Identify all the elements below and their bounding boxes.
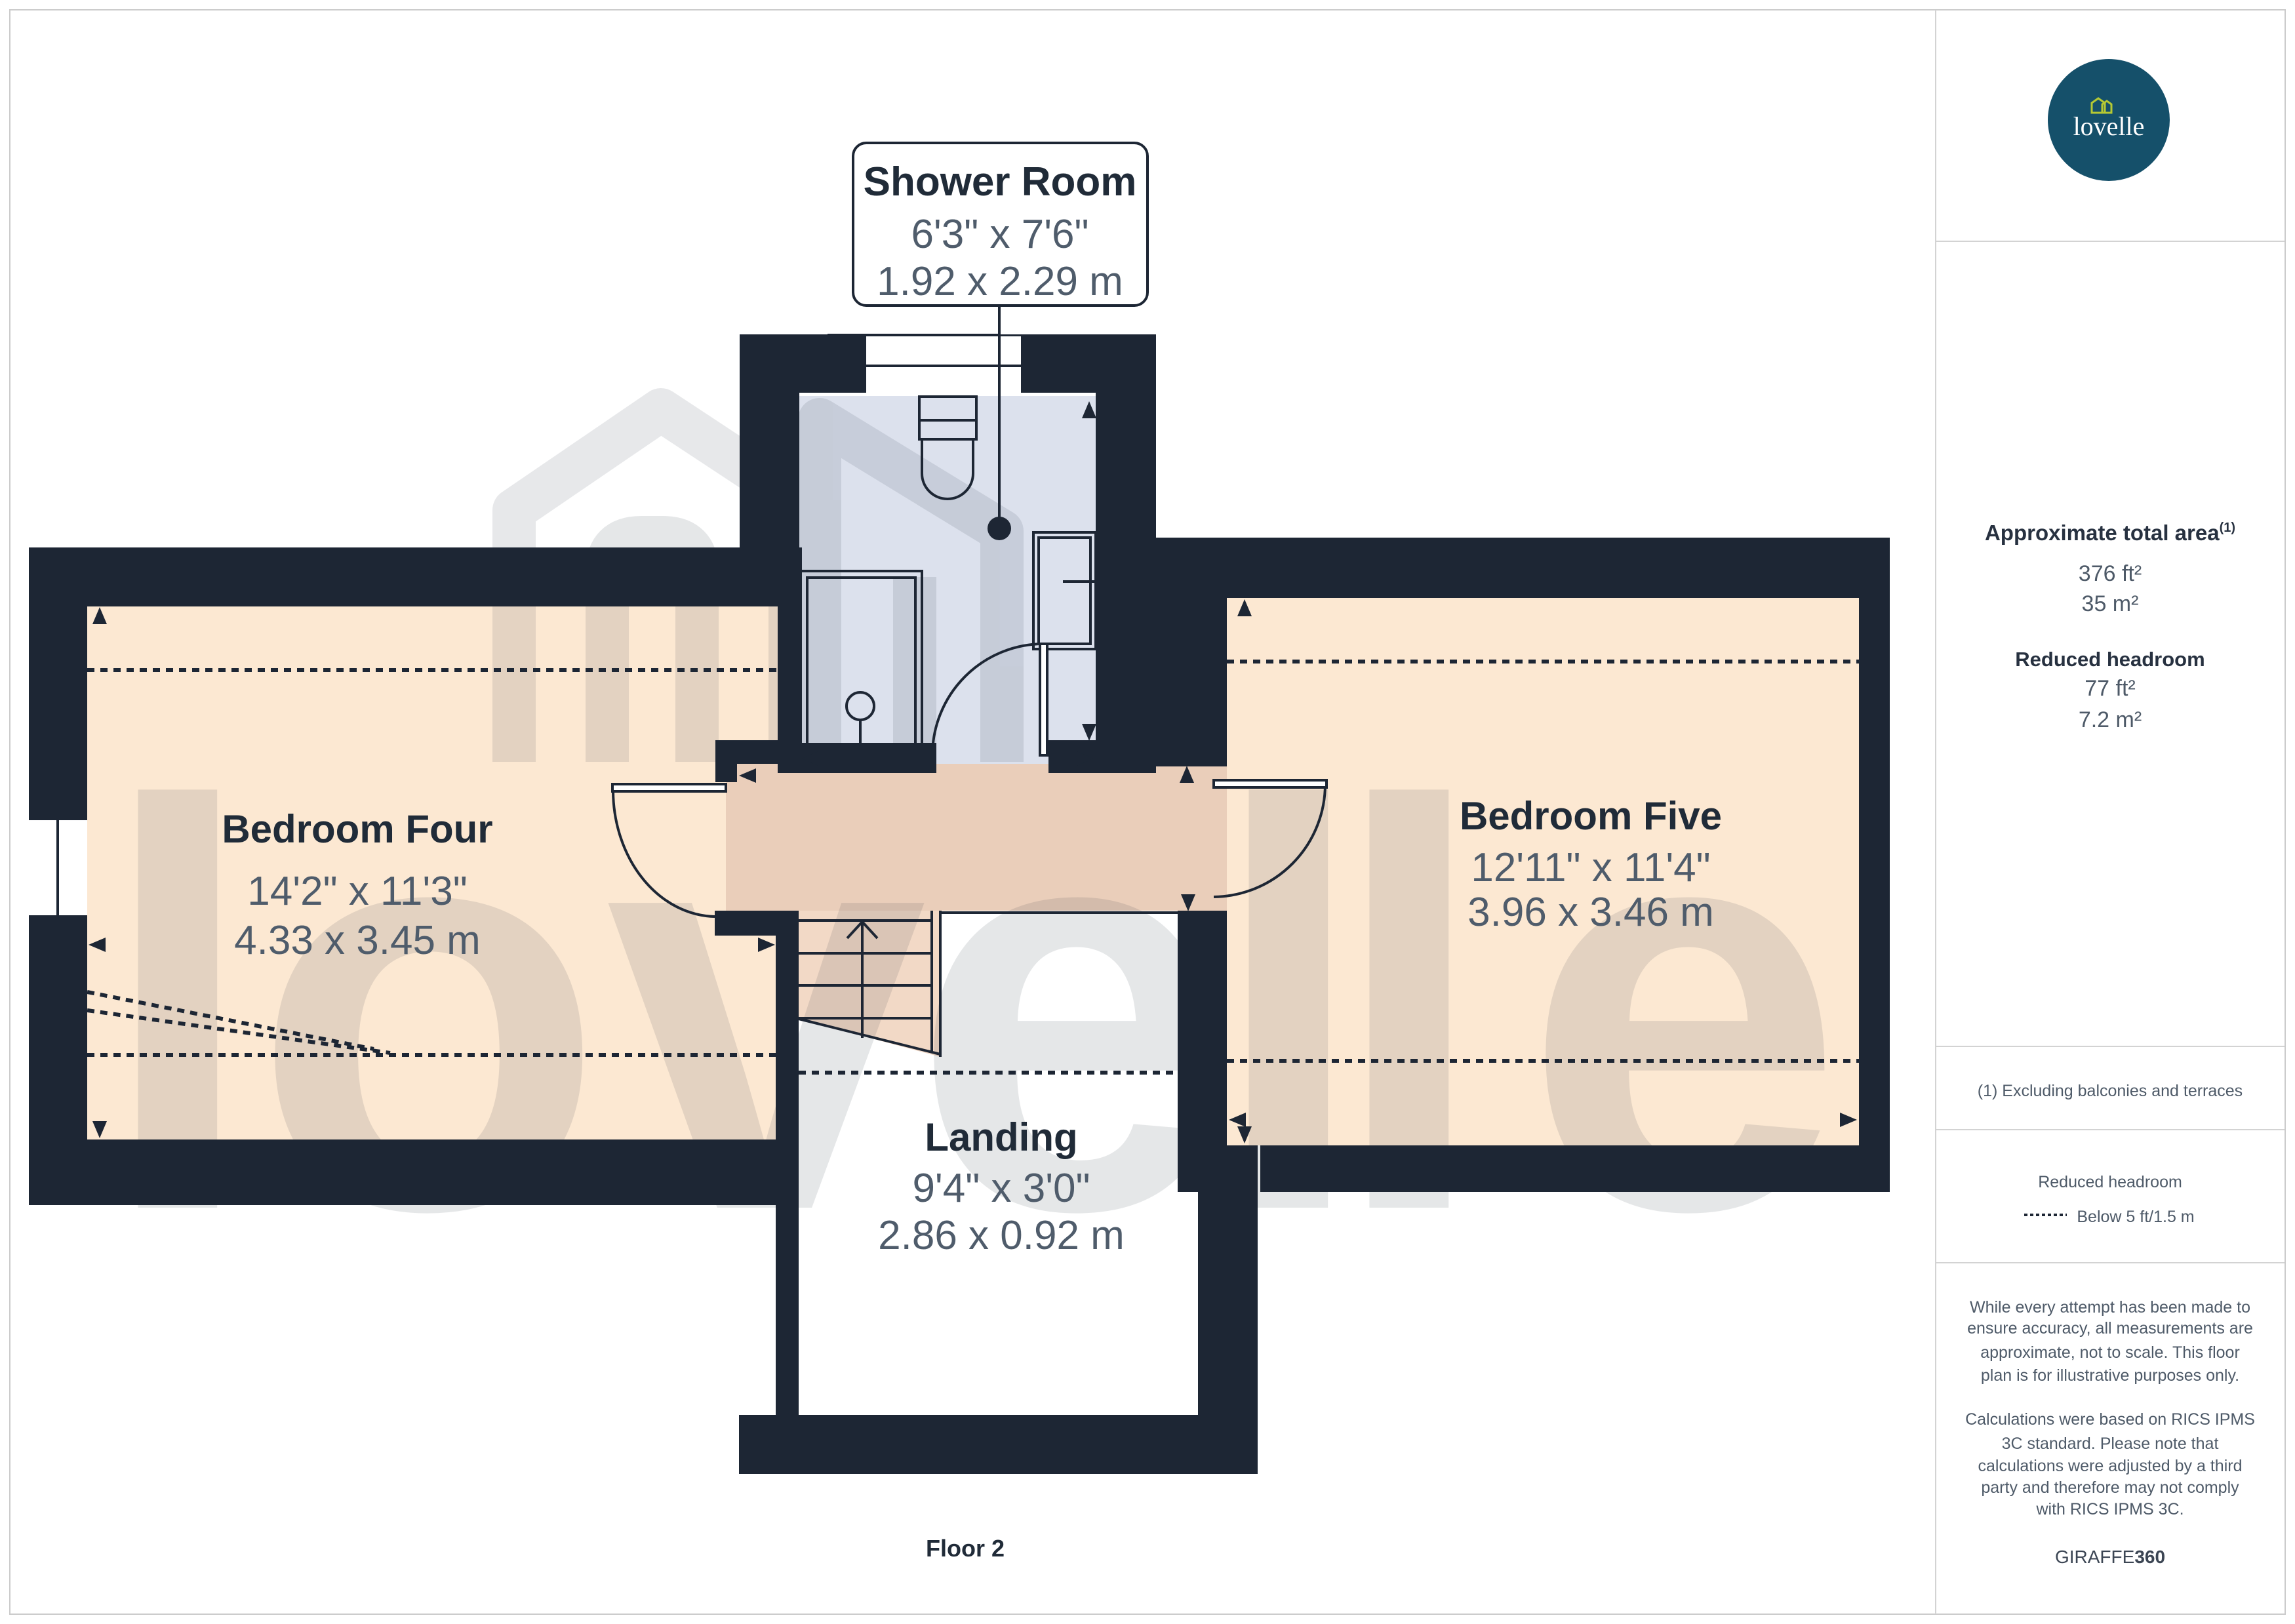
svg-text:ensure accuracy, all measureme: ensure accuracy, all measurements are xyxy=(1967,1319,2253,1337)
svg-text:While every attempt has been m: While every attempt has been made to xyxy=(1970,1298,2250,1317)
svg-text:lovelle: lovelle xyxy=(2073,111,2145,141)
svg-text:9'4" x 3'0": 9'4" x 3'0" xyxy=(912,1166,1090,1211)
svg-text:with RICS IPMS 3C.: with RICS IPMS 3C. xyxy=(2035,1500,2184,1518)
svg-text:approximate, not to scale. Thi: approximate, not to scale. This floor xyxy=(1980,1343,2240,1362)
svg-text:14'2" x 11'3": 14'2" x 11'3" xyxy=(247,869,467,914)
svg-text:(1) Excluding balconies and te: (1) Excluding balconies and terraces xyxy=(1978,1082,2243,1100)
svg-text:3C standard. Please note that: 3C standard. Please note that xyxy=(2002,1435,2219,1453)
svg-text:Landing: Landing xyxy=(925,1115,1077,1159)
svg-text:6'3" x 7'6": 6'3" x 7'6" xyxy=(911,212,1088,257)
svg-text:1.92 x 2.29 m: 1.92 x 2.29 m xyxy=(877,259,1123,304)
svg-text:plan is for illustrative purpo: plan is for illustrative purposes only. xyxy=(1981,1366,2239,1385)
svg-text:Bedroom Four: Bedroom Four xyxy=(222,807,492,851)
svg-text:2.86 x 0.92 m: 2.86 x 0.92 m xyxy=(878,1213,1125,1258)
svg-text:Shower Room: Shower Room xyxy=(864,159,1137,205)
svg-text:Bedroom Five: Bedroom Five xyxy=(1460,794,1722,838)
svg-text:3.96 x 3.46 m: 3.96 x 3.46 m xyxy=(1467,890,1714,935)
svg-text:12'11" x 11'4": 12'11" x 11'4" xyxy=(1471,845,1710,890)
svg-text:GIRAFFE360: GIRAFFE360 xyxy=(2055,1547,2165,1567)
svg-text:Reduced headroom: Reduced headroom xyxy=(2038,1173,2182,1191)
svg-text:35 m²: 35 m² xyxy=(2082,591,2139,616)
svg-text:7.2 m²: 7.2 m² xyxy=(2079,707,2142,732)
svg-text:376 ft²: 376 ft² xyxy=(2079,561,2142,586)
svg-text:calculations were adjusted by: calculations were adjusted by a third xyxy=(1978,1457,2242,1475)
svg-text:4.33 x 3.45 m: 4.33 x 3.45 m xyxy=(234,918,481,963)
svg-text:party and therefore may not co: party and therefore may not comply xyxy=(1981,1478,2239,1497)
svg-text:77 ft²: 77 ft² xyxy=(2085,676,2135,701)
svg-text:Below 5 ft/1.5 m: Below 5 ft/1.5 m xyxy=(2077,1208,2194,1226)
svg-text:Calculations were based on RIC: Calculations were based on RICS IPMS xyxy=(1965,1410,2255,1429)
svg-text:Floor 2: Floor 2 xyxy=(926,1535,1005,1562)
svg-text:Approximate total area(1): Approximate total area(1) xyxy=(1985,521,2235,545)
svg-text:Reduced headroom: Reduced headroom xyxy=(2015,648,2205,671)
